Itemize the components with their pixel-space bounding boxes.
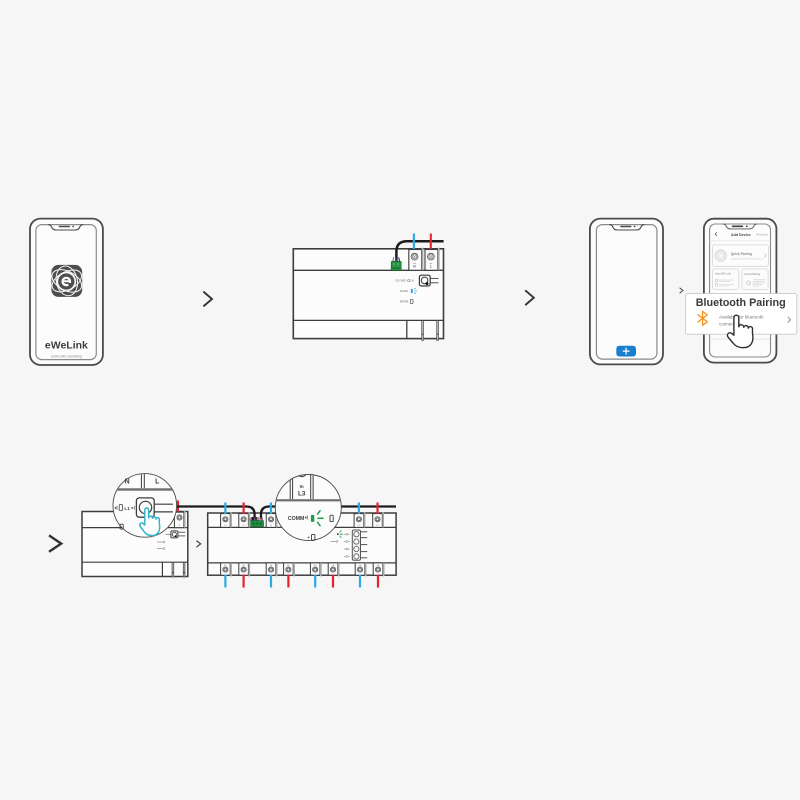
svg-text:Sound Pairing: Sound Pairing (745, 274, 761, 276)
svg-text:L: L (155, 479, 160, 486)
svg-text:ERROR: ERROR (400, 301, 409, 303)
svg-text:Bluetooth Pairing: Bluetooth Pairing (696, 297, 786, 309)
svg-text:COMM: COMM (288, 516, 304, 522)
svg-text:Supports BLE and Wi-Fi smart d: Supports BLE and Wi-Fi smart devices (731, 258, 764, 261)
svg-text:Quick Pairing: Quick Pairing (731, 252, 752, 256)
svg-text:SD CARD: SD CARD (395, 279, 406, 282)
svg-text:In: In (300, 484, 304, 489)
svg-text:All Devices: All Devices (756, 234, 769, 237)
svg-text:L: L (430, 265, 432, 269)
svg-text:Add Device: Add Device (731, 233, 751, 237)
svg-text:L3: L3 (298, 490, 306, 497)
svg-text:Scan QR code: Scan QR code (715, 273, 731, 275)
svg-text:N: N (125, 479, 130, 486)
svg-text:SIGNAL: SIGNAL (400, 290, 409, 293)
svg-text:Available for bluetooth: Available for bluetooth (719, 315, 764, 320)
svg-text:works with everything: works with everything (51, 355, 82, 359)
svg-text:eWeLink: eWeLink (45, 340, 88, 352)
svg-text:L1: L1 (124, 506, 130, 511)
svg-text:CH: CH (410, 280, 414, 282)
